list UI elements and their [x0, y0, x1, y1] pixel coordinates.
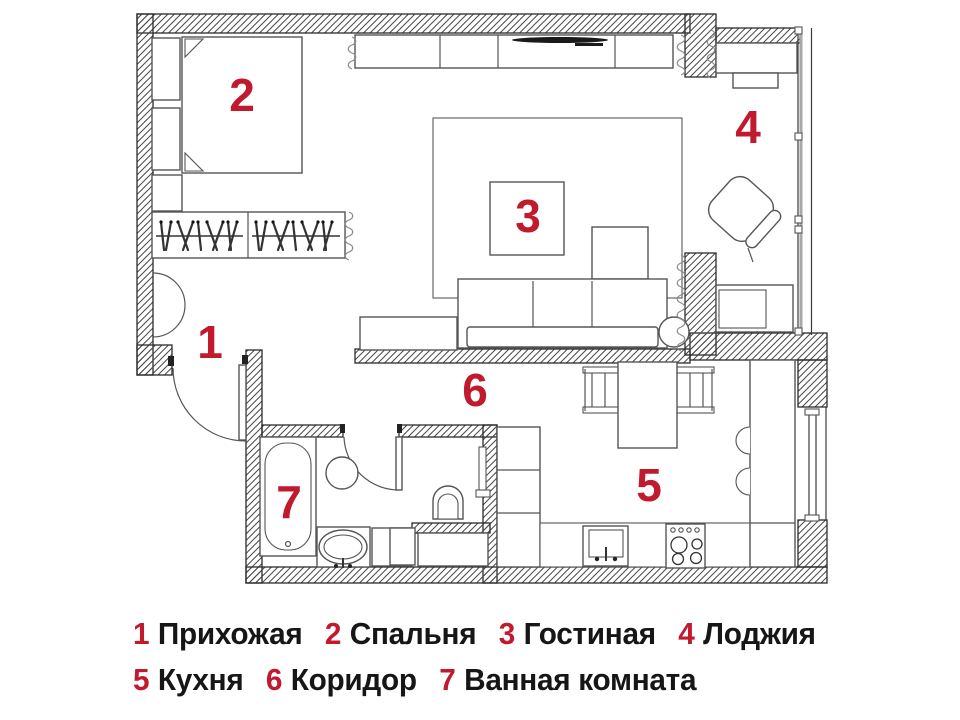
- wall-toilet-base: [412, 523, 490, 533]
- legend-label-3: Гостиная: [524, 616, 656, 651]
- wall-bath-top-left: [262, 425, 343, 437]
- legend-label-7: Ванная комната: [464, 662, 696, 697]
- legend-number-4: 4: [678, 616, 694, 651]
- legend-number-3: 3: [499, 616, 515, 651]
- dining-table: [618, 362, 677, 448]
- legend-label-4: Лоджия: [703, 616, 816, 651]
- legend-number-6: 6: [266, 662, 282, 697]
- room-label-2: 2: [229, 69, 255, 121]
- room-label-7: 7: [276, 476, 302, 528]
- wall-kitchen-right-bottom: [798, 520, 827, 567]
- wall-livingroom-south: [355, 349, 690, 363]
- legend-row-2: 5Кухня 6Коридор 7Ванная комната: [133, 657, 830, 703]
- loggia-cabinet: [716, 285, 793, 332]
- wall-kitchen-right-top: [798, 360, 827, 407]
- wall-entry-stub: [137, 345, 172, 375]
- washing-machine: [326, 457, 358, 489]
- nightstand-bottom: [152, 108, 180, 170]
- legend-label-2: Спальня: [350, 616, 477, 651]
- dining-chair-right: [677, 367, 714, 413]
- toilet-unit-box: [418, 533, 488, 566]
- loggia-desk: [716, 43, 797, 73]
- nightstand-top: [152, 38, 180, 100]
- legend-number-7: 7: [439, 662, 455, 697]
- wall-bath-top-right: [399, 425, 497, 437]
- wall-loggia-west: [685, 253, 716, 355]
- kitchen-window: [805, 407, 826, 521]
- legend-label-1: Прихожая: [158, 616, 303, 651]
- bedroom-stool: [152, 175, 182, 211]
- dining-chair-left: [583, 367, 620, 413]
- wall-top: [137, 14, 690, 33]
- floor-plan-page: 1 2 3 4 5 6 7 1Прихожая 2Спальня 3Гостин…: [0, 0, 960, 720]
- wall-loggia-top: [716, 28, 800, 43]
- kitchen-counter: [540, 523, 750, 567]
- stove: [666, 524, 705, 568]
- loggia-stool: [733, 73, 778, 88]
- kitchen-cabinet-column: [497, 427, 540, 567]
- legend-label-5: Кухня: [158, 662, 244, 697]
- legend-label-6: Коридор: [291, 662, 417, 697]
- room-label-3: 3: [515, 190, 541, 242]
- legend-number-5: 5: [133, 662, 149, 697]
- console-table: [360, 317, 457, 350]
- toilet: [433, 486, 463, 519]
- vanity-sink: [317, 527, 370, 568]
- room-label-4: 4: [735, 101, 761, 153]
- hall-mirror: [153, 273, 185, 337]
- wall-bottom: [246, 567, 827, 583]
- room-label-6: 6: [462, 364, 488, 416]
- loggia-chair: [703, 171, 786, 262]
- kitchen-sink: [583, 526, 628, 566]
- room-label-5: 5: [636, 459, 662, 511]
- legend-number-1: 1: [133, 616, 149, 651]
- legend: 1Прихожая 2Спальня 3Гостиная 4Лоджия 5Ку…: [133, 611, 830, 703]
- wardrobe: [152, 212, 345, 258]
- wall-left: [137, 14, 153, 375]
- legend-number-2: 2: [325, 616, 341, 651]
- bath-side-box: [390, 528, 415, 565]
- room-label-1: 1: [197, 316, 223, 368]
- legend-row-1: 1Прихожая 2Спальня 3Гостиная 4Лоджия: [133, 611, 830, 657]
